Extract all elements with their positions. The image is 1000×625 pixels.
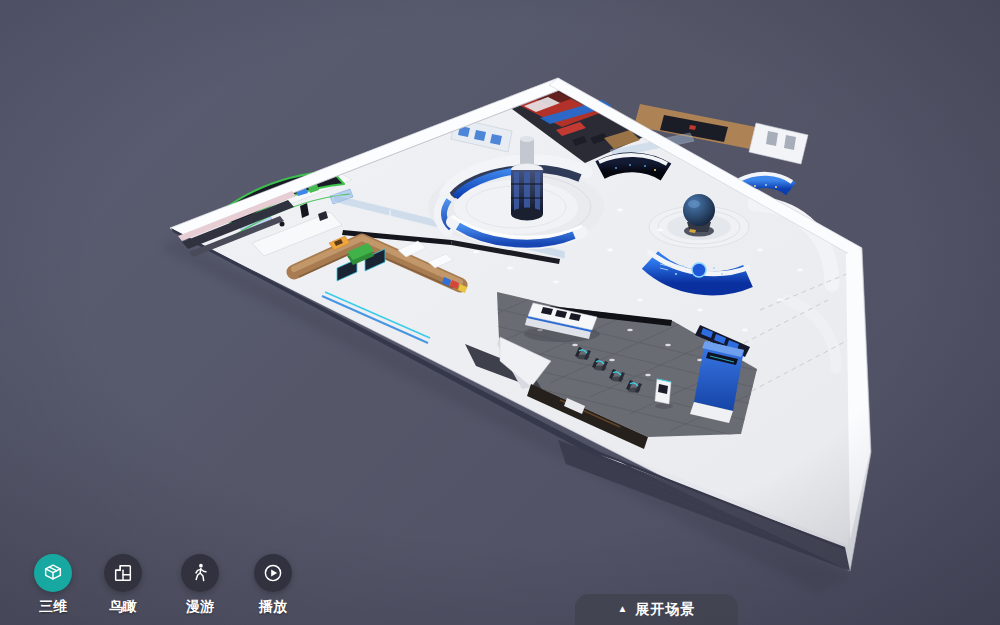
walking-person-icon bbox=[189, 562, 211, 584]
tool-play-label: 播放 bbox=[259, 598, 287, 616]
tool-play-button[interactable]: 播放 bbox=[243, 554, 303, 616]
expand-scene-label: 展开场景 bbox=[635, 601, 695, 619]
vignette bbox=[0, 0, 1000, 625]
viewer-stage: 三维 鸟瞰 bbox=[0, 0, 1000, 625]
floorplan-icon bbox=[112, 562, 134, 584]
view-mode-toolbar: 三维 鸟瞰 bbox=[0, 540, 340, 625]
tool-roam-label: 漫游 bbox=[186, 598, 214, 616]
tool-play-circle[interactable] bbox=[254, 554, 292, 592]
tool-birdseye-circle[interactable] bbox=[104, 554, 142, 592]
tool-birdseye-button[interactable]: 鸟瞰 bbox=[93, 554, 153, 616]
scene-3d-viewport[interactable] bbox=[0, 0, 1000, 625]
tool-3d-button[interactable]: 三维 bbox=[23, 554, 83, 616]
play-circle-icon bbox=[262, 562, 284, 584]
tool-roam-circle[interactable] bbox=[181, 554, 219, 592]
triangle-up-icon: ▲ bbox=[618, 604, 629, 614]
tool-birdseye-label: 鸟瞰 bbox=[109, 598, 137, 616]
expand-scene-button[interactable]: ▲ 展开场景 bbox=[575, 594, 738, 625]
tool-3d-label: 三维 bbox=[39, 598, 67, 616]
cube-3d-icon bbox=[42, 562, 64, 584]
tool-roam-button[interactable]: 漫游 bbox=[170, 554, 230, 616]
tool-3d-circle[interactable] bbox=[34, 554, 72, 592]
